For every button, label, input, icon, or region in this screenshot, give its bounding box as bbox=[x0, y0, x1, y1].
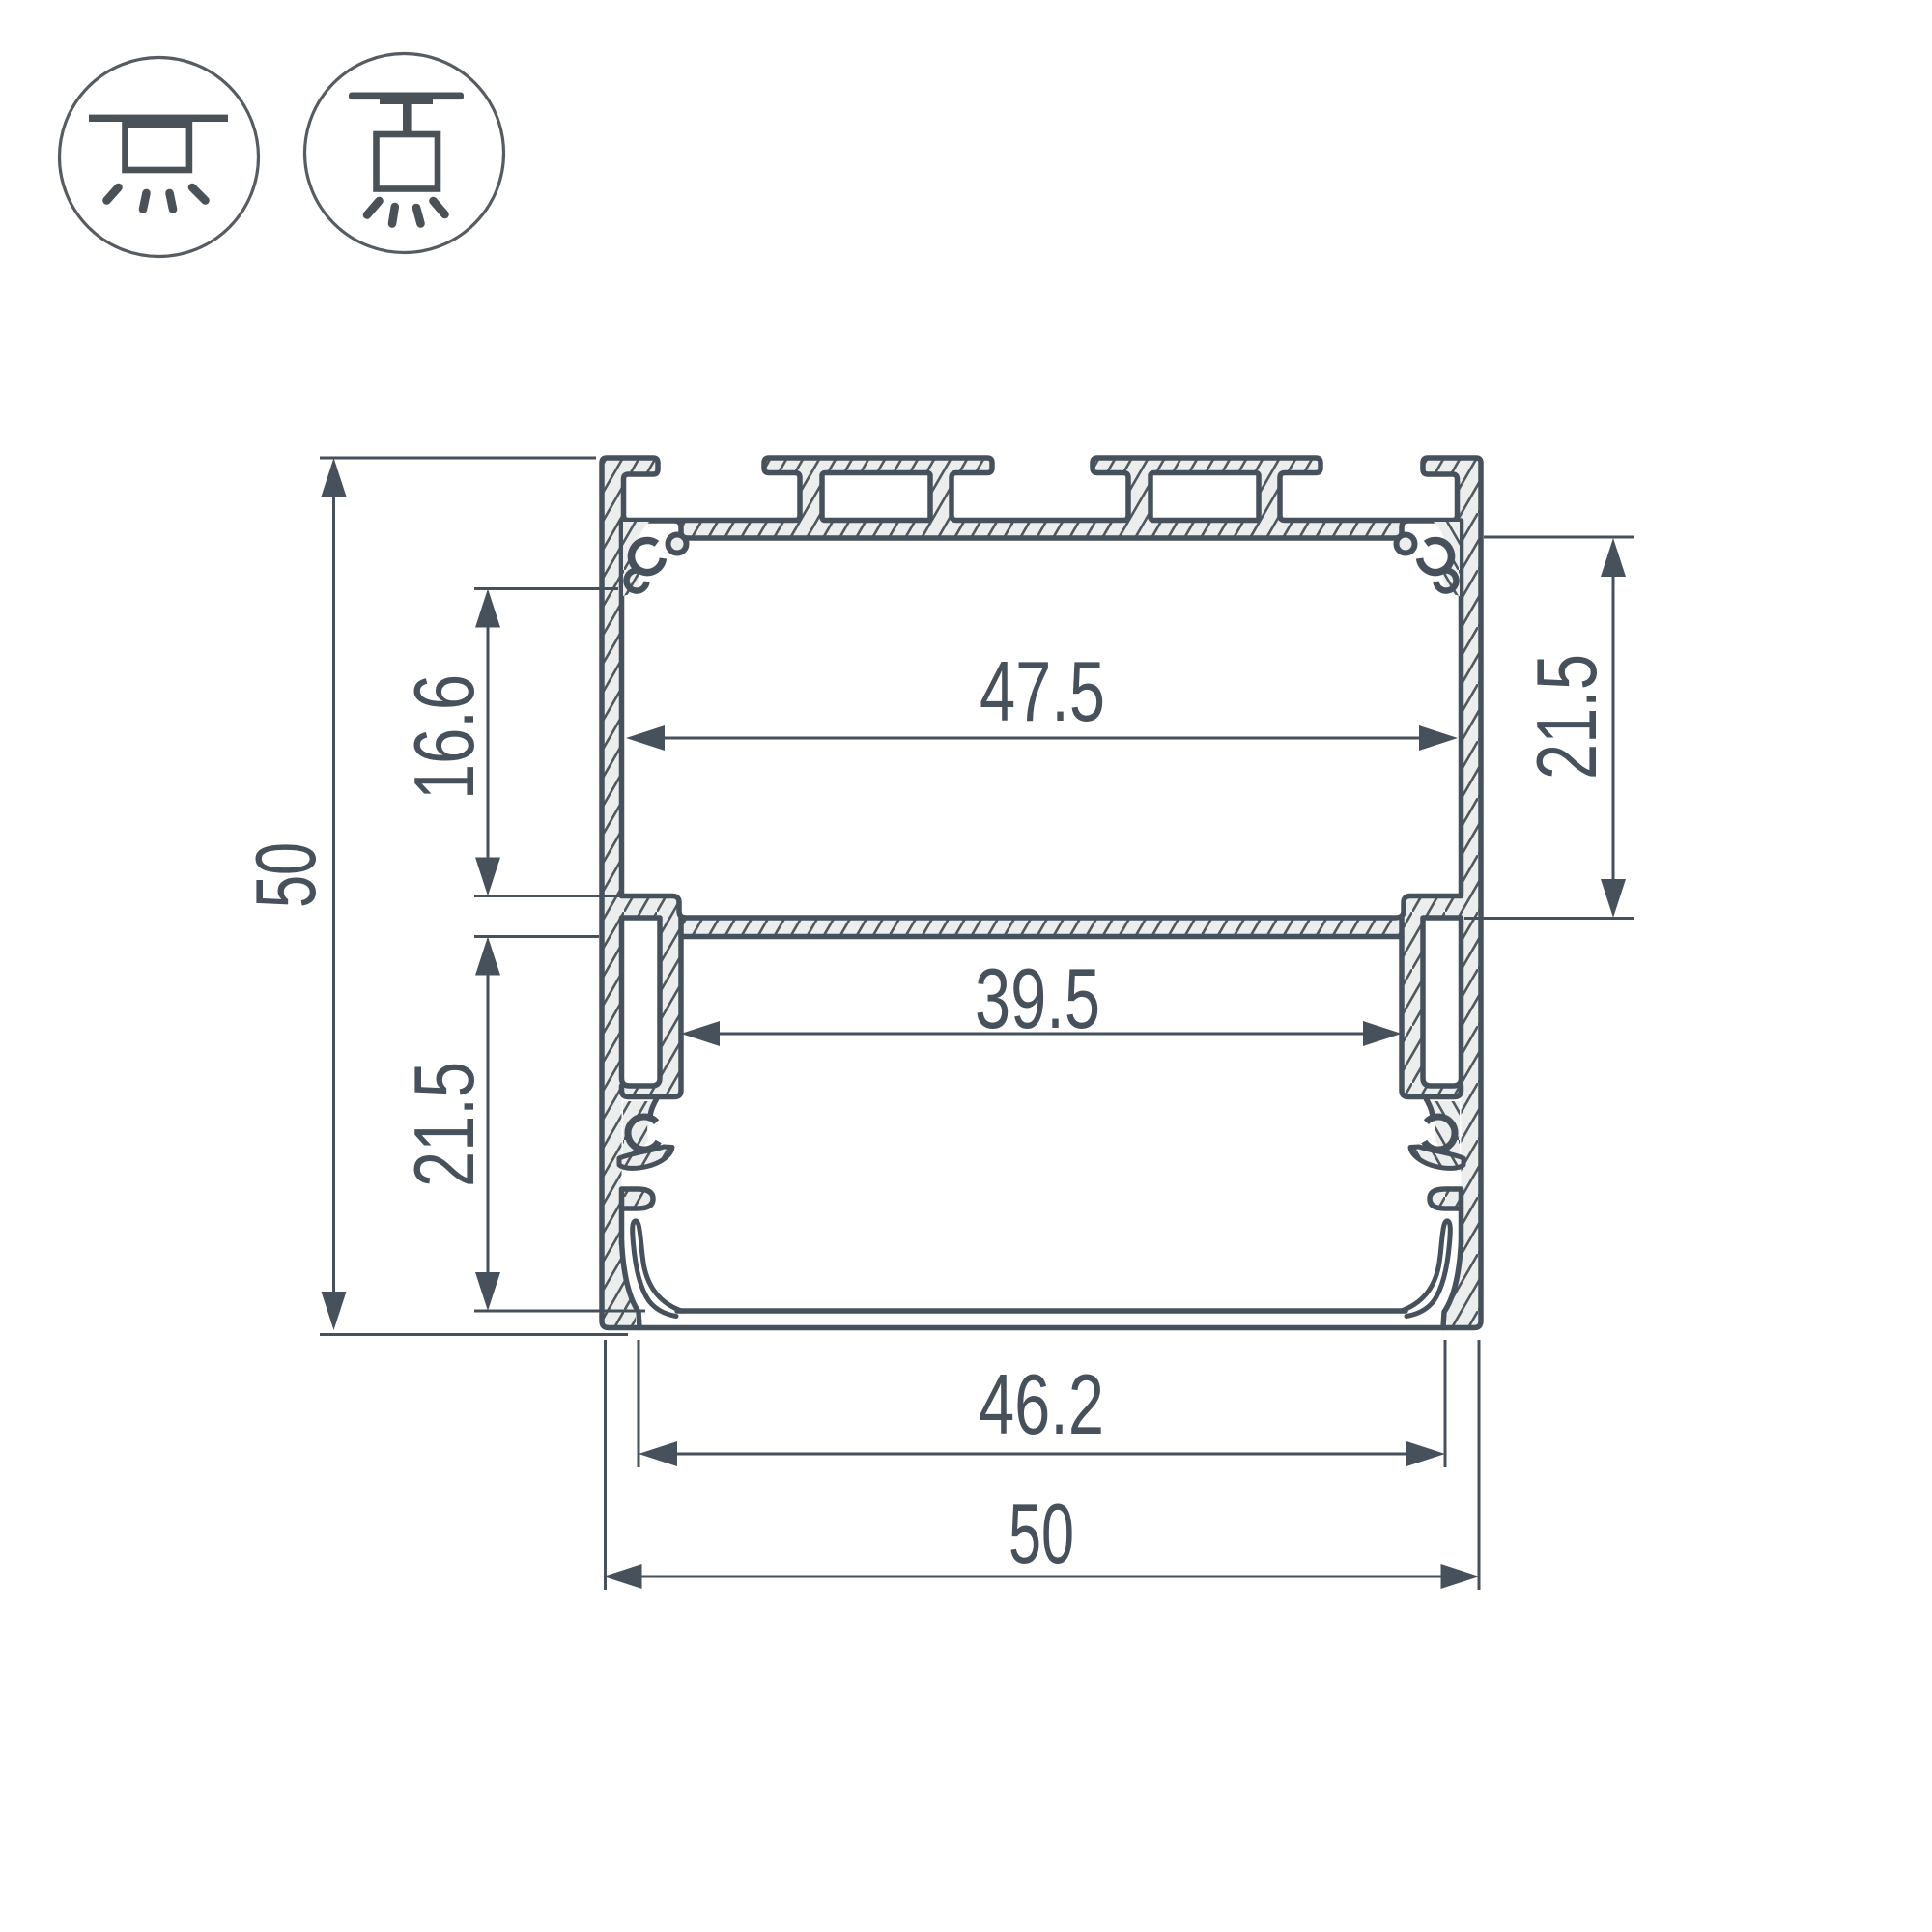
svg-text:39.5: 39.5 bbox=[975, 951, 1100, 1046]
svg-text:47.5: 47.5 bbox=[980, 643, 1105, 739]
svg-text:50: 50 bbox=[1009, 1486, 1074, 1581]
svg-text:16.6: 16.6 bbox=[396, 674, 492, 800]
svg-text:21.5: 21.5 bbox=[1519, 654, 1614, 780]
svg-text:50: 50 bbox=[238, 842, 333, 908]
svg-text:21.5: 21.5 bbox=[396, 1062, 492, 1187]
svg-text:46.2: 46.2 bbox=[979, 1356, 1104, 1452]
